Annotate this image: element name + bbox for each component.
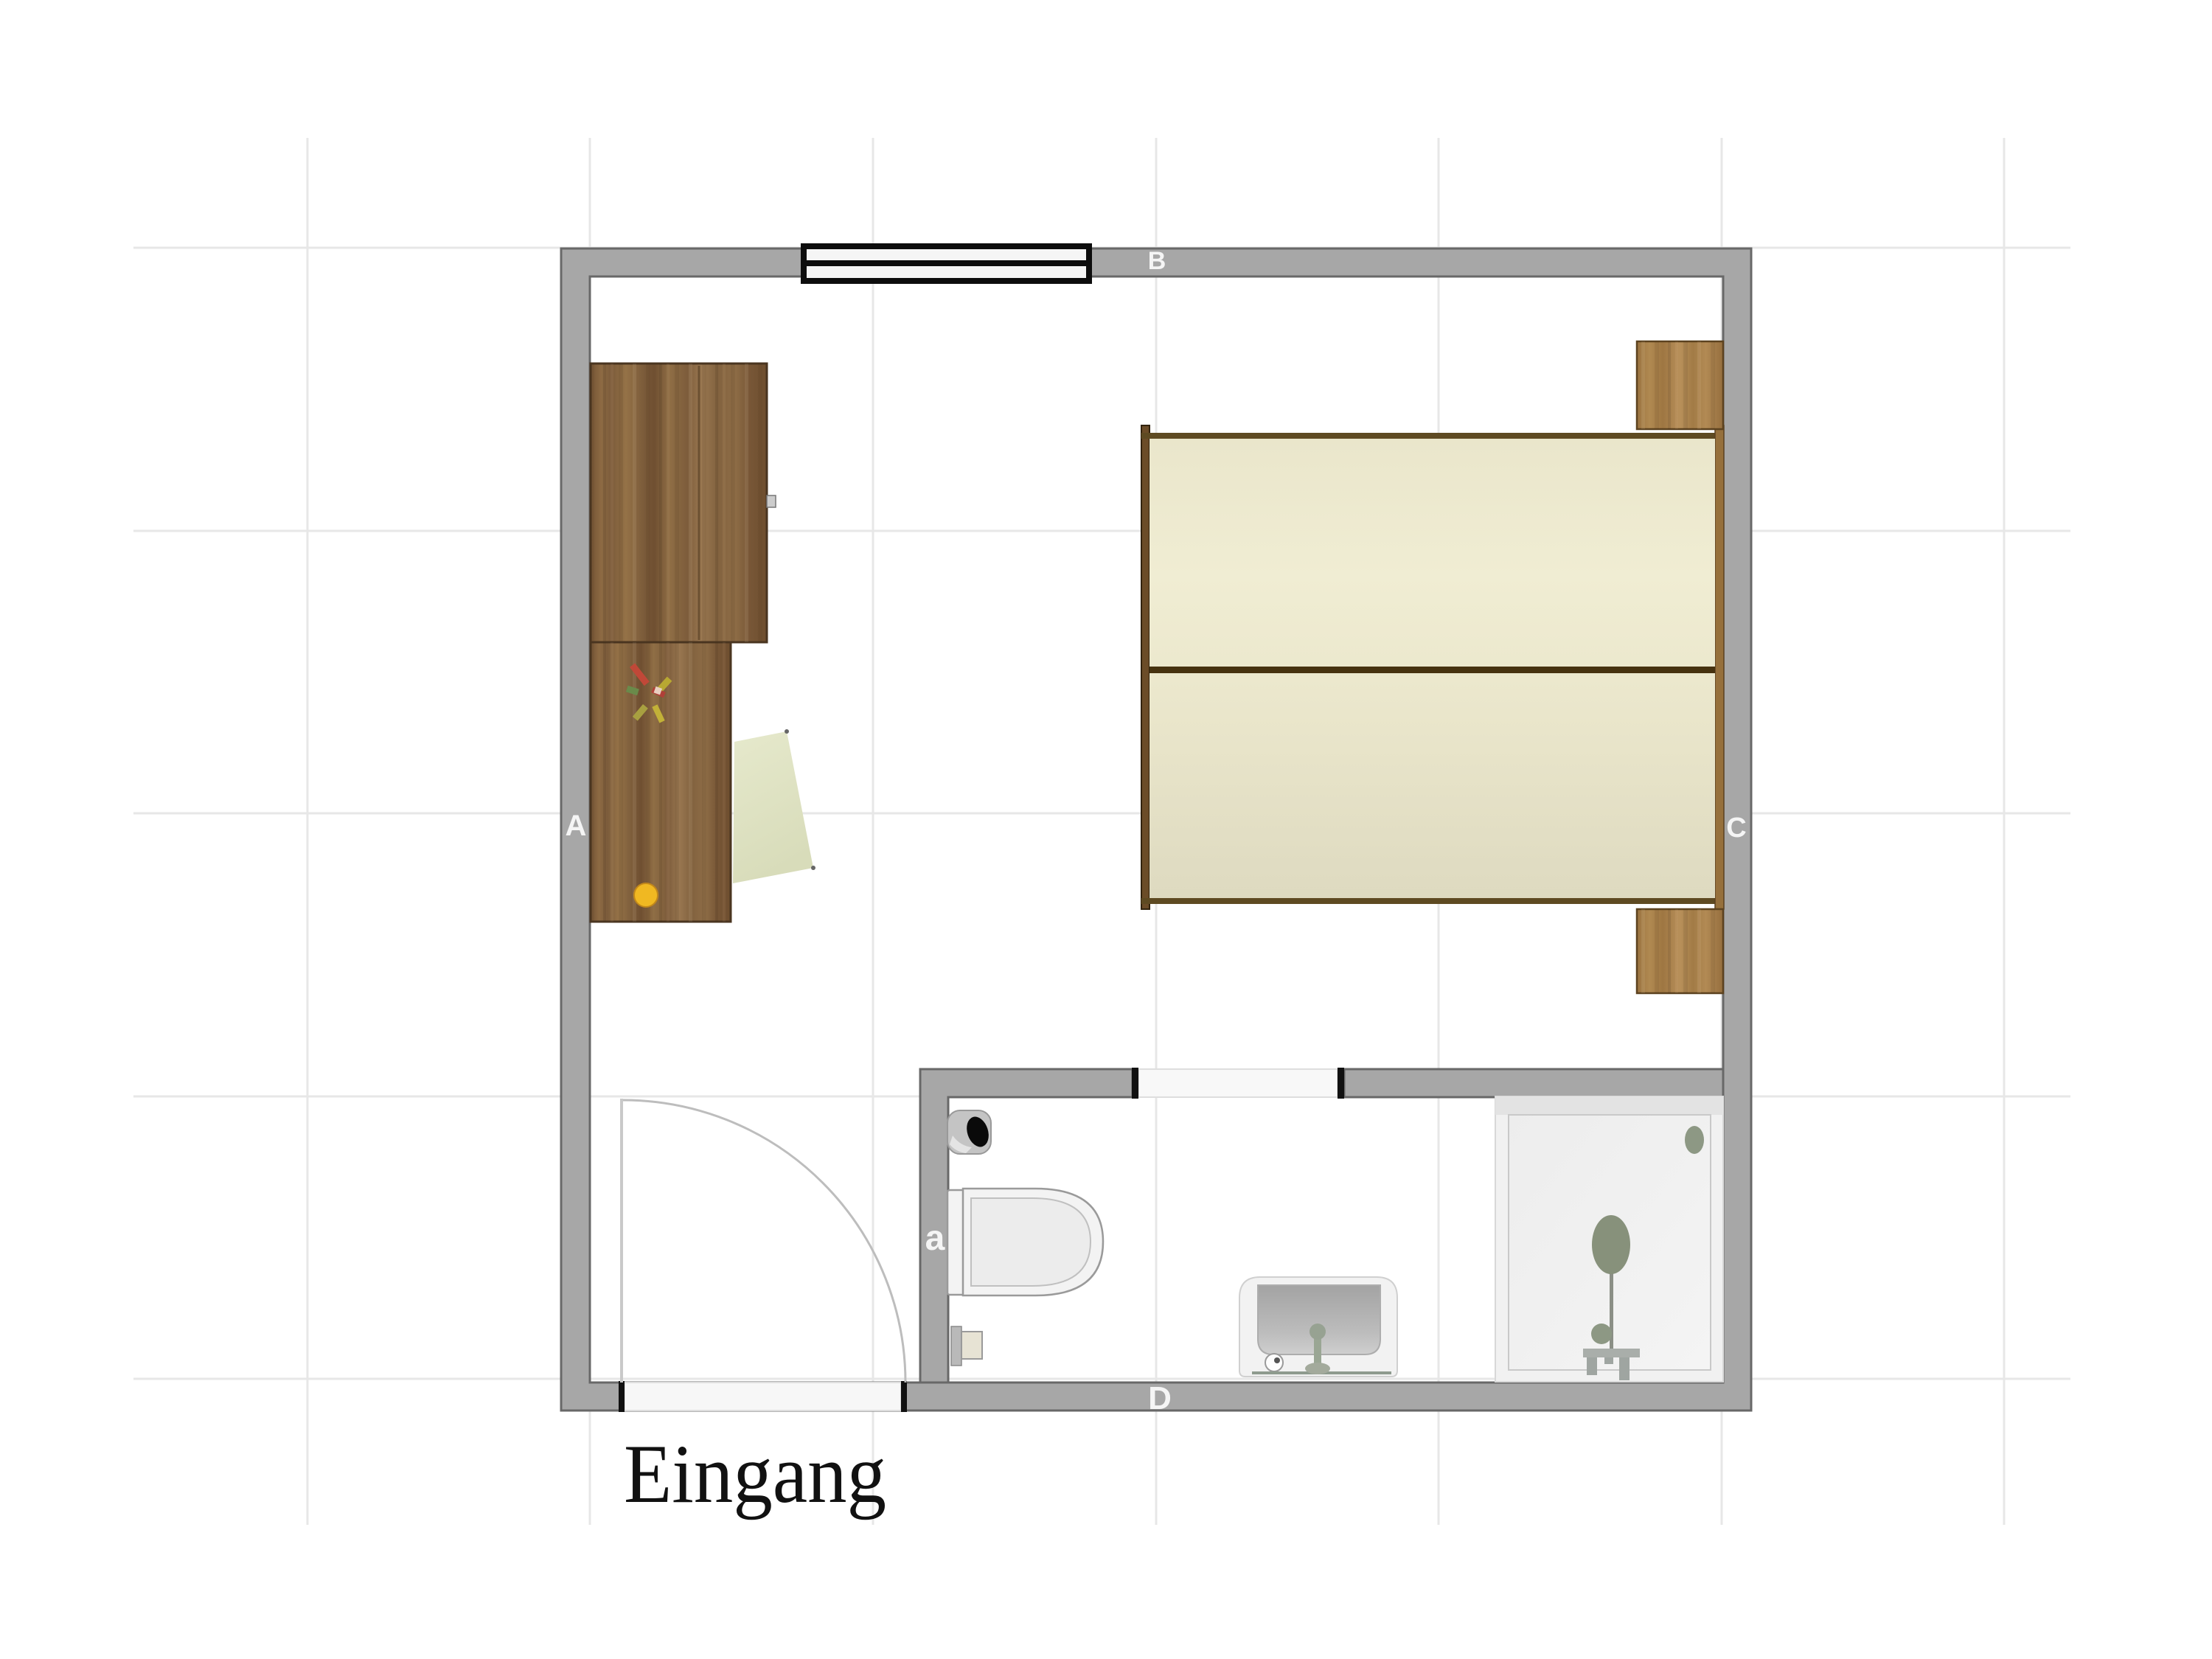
svg-text:C: C xyxy=(1726,813,1746,844)
svg-text:a: a xyxy=(925,1219,945,1258)
svg-text:Eingang: Eingang xyxy=(624,1428,886,1520)
svg-text:B: B xyxy=(1148,247,1166,275)
svg-text:A: A xyxy=(566,810,587,842)
svg-text:D: D xyxy=(1148,1380,1172,1416)
